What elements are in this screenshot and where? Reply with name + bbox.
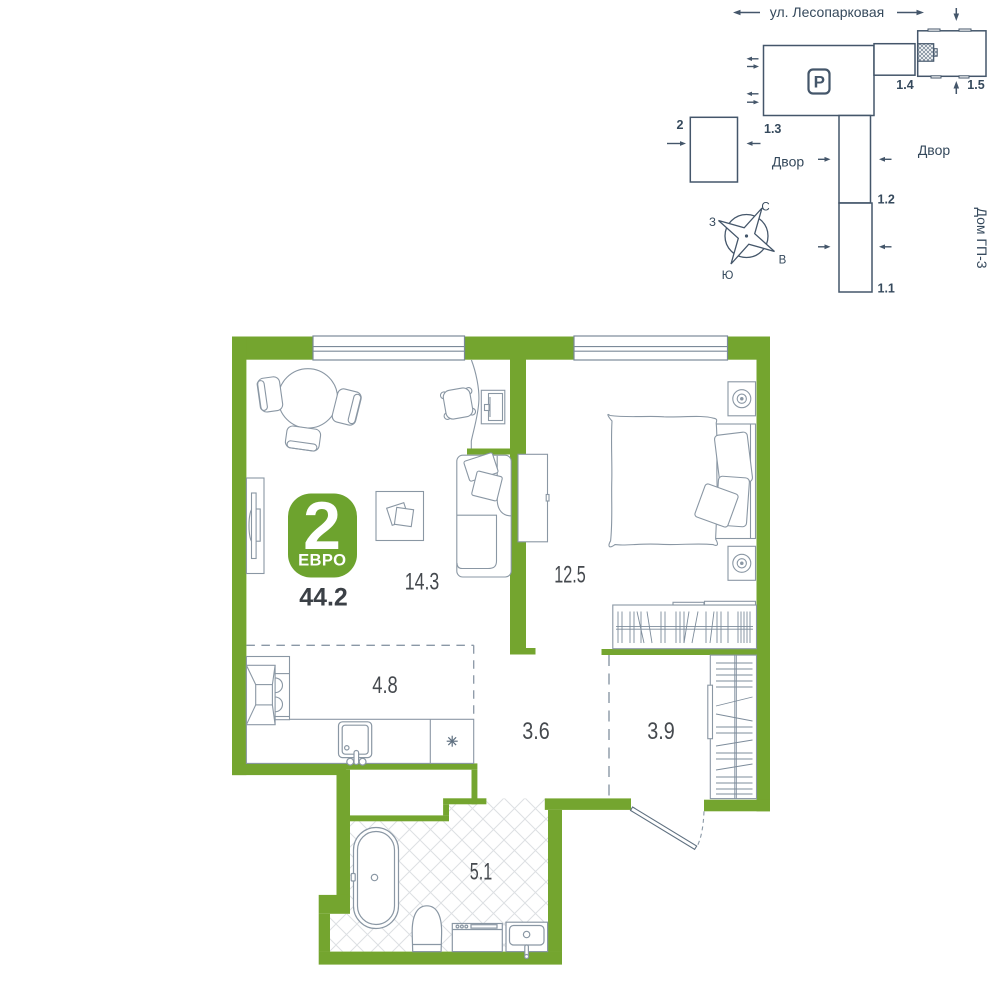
svg-text:3.9: 3.9: [647, 718, 675, 745]
svg-text:1.4: 1.4: [896, 78, 913, 92]
svg-text:3.6: 3.6: [522, 718, 550, 745]
svg-text:1.5: 1.5: [967, 78, 984, 92]
svg-text:2: 2: [677, 118, 684, 132]
svg-text:В: В: [779, 255, 787, 267]
svg-text:5.1: 5.1: [470, 859, 493, 886]
svg-text:44.2: 44.2: [299, 584, 348, 612]
svg-text:С: С: [761, 202, 769, 214]
svg-text:1.3: 1.3: [764, 122, 781, 136]
svg-text:4.8: 4.8: [372, 672, 398, 699]
svg-text:Ю: Ю: [722, 270, 734, 282]
svg-text:1.2: 1.2: [878, 193, 895, 207]
svg-text:ул. Лесопарковая: ул. Лесопарковая: [770, 4, 884, 20]
svg-text:Дом ГП-3: Дом ГП-3: [974, 207, 990, 268]
svg-text:12.5: 12.5: [554, 561, 586, 588]
svg-text:Двор: Двор: [772, 154, 805, 170]
svg-text:З: З: [709, 217, 716, 229]
svg-text:ЕВРО: ЕВРО: [298, 551, 346, 570]
svg-text:P: P: [814, 73, 825, 92]
svg-text:Двор: Двор: [918, 142, 951, 158]
svg-text:14.3: 14.3: [405, 569, 440, 596]
svg-text:1.1: 1.1: [878, 282, 895, 296]
